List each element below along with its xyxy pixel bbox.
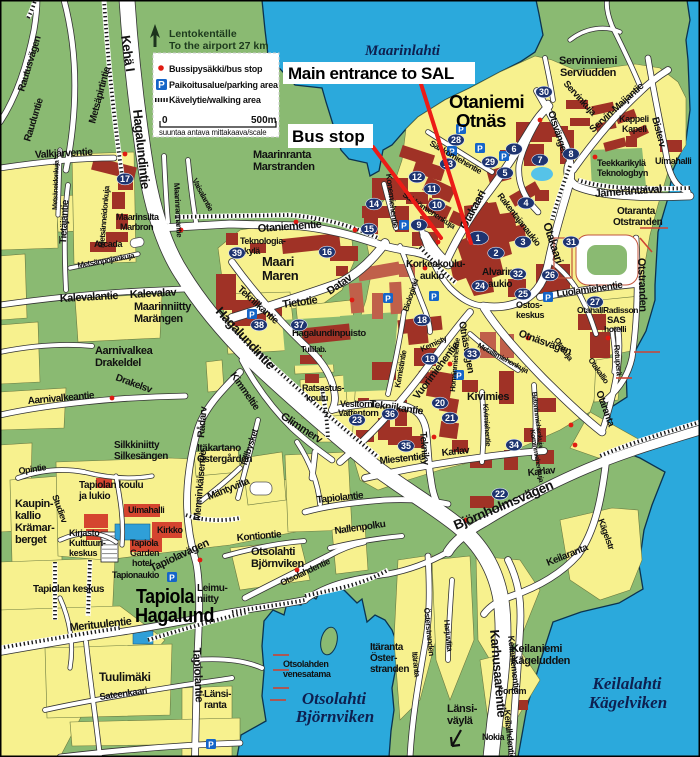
svg-text:500m: 500m xyxy=(251,115,277,126)
svg-text:Keilalahti: Keilalahti xyxy=(592,674,662,693)
svg-text:Ostos-: Ostos- xyxy=(516,300,543,310)
svg-text:28: 28 xyxy=(451,135,461,145)
svg-text:P: P xyxy=(501,152,507,162)
svg-text:4: 4 xyxy=(523,198,528,208)
svg-text:29: 29 xyxy=(485,157,495,167)
svg-text:keskus: keskus xyxy=(516,310,545,320)
svg-text:36: 36 xyxy=(385,409,395,419)
svg-text:Kapell: Kapell xyxy=(622,124,647,134)
svg-text:Marängen: Marängen xyxy=(134,313,183,325)
svg-text:Leimu-: Leimu- xyxy=(197,583,227,594)
svg-text:3: 3 xyxy=(520,237,525,247)
svg-text:Teknologbyn: Teknologbyn xyxy=(597,168,648,178)
svg-text:kylä: kylä xyxy=(244,246,261,256)
svg-text:Otaranta: Otaranta xyxy=(617,206,656,217)
svg-text:5: 5 xyxy=(502,168,507,178)
svg-text:Uimahalli: Uimahalli xyxy=(655,156,691,166)
svg-text:30: 30 xyxy=(539,87,549,97)
svg-text:26: 26 xyxy=(545,270,555,280)
svg-text:20: 20 xyxy=(435,398,445,408)
svg-text:Kävelytie/walking area: Kävelytie/walking area xyxy=(169,95,262,105)
svg-text:Aarnivalkea: Aarnivalkea xyxy=(95,345,154,357)
svg-text:P: P xyxy=(249,310,255,320)
svg-text:väylä: väylä xyxy=(447,715,474,727)
svg-text:Teekkarikylä: Teekkarikylä xyxy=(597,158,647,168)
svg-text:keskus: keskus xyxy=(69,548,98,558)
svg-text:27: 27 xyxy=(590,297,600,307)
svg-text:Ratsastus-: Ratsastus- xyxy=(302,383,344,393)
svg-text:Öster-: Öster- xyxy=(370,651,397,664)
svg-text:21: 21 xyxy=(445,413,455,423)
svg-text:Kirjasto: Kirjasto xyxy=(69,528,100,538)
svg-text:Otsolahden: Otsolahden xyxy=(283,659,329,669)
svg-text:Tapiolan keskus: Tapiolan keskus xyxy=(33,584,105,595)
svg-text:19: 19 xyxy=(425,354,435,364)
svg-text:P: P xyxy=(477,144,483,154)
svg-text:hotelli: hotelli xyxy=(604,324,626,334)
svg-text:2: 2 xyxy=(493,248,498,258)
svg-text:Drakeldel: Drakeldel xyxy=(95,357,141,369)
svg-text:Serviudden: Serviudden xyxy=(560,67,617,79)
svg-text:P: P xyxy=(158,80,165,91)
svg-text:Länsi-: Länsi- xyxy=(204,689,231,700)
svg-text:berget: berget xyxy=(15,534,47,546)
svg-text:Björnviken: Björnviken xyxy=(251,558,305,570)
svg-text:kallio: kallio xyxy=(15,510,41,522)
svg-text:39: 39 xyxy=(232,248,242,258)
svg-text:Marbron: Marbron xyxy=(120,222,153,232)
svg-text:38: 38 xyxy=(254,320,264,330)
svg-text:8: 8 xyxy=(568,149,573,159)
svg-text:Korkeakoulu-: Korkeakoulu- xyxy=(406,259,465,270)
svg-text:Tapiolan koulu: Tapiolan koulu xyxy=(79,480,144,491)
svg-text:P: P xyxy=(385,294,391,304)
svg-text:Otstranden: Otstranden xyxy=(635,258,649,313)
svg-text:Otsolahti: Otsolahti xyxy=(251,546,295,558)
svg-text:14: 14 xyxy=(369,199,379,209)
svg-text:6: 6 xyxy=(511,144,516,154)
svg-text:P: P xyxy=(208,740,214,750)
svg-text:venesatama: venesatama xyxy=(283,669,332,679)
svg-text:Hagalund: Hagalund xyxy=(135,605,214,627)
svg-text:18: 18 xyxy=(417,315,427,325)
svg-text:Kulttuuri-: Kulttuuri- xyxy=(69,538,106,548)
svg-text:Teknologia-: Teknologia- xyxy=(240,236,286,246)
svg-text:Bus stop: Bus stop xyxy=(292,127,365,146)
svg-text:Krämar-: Krämar- xyxy=(15,522,55,534)
svg-text:Björnviken: Björnviken xyxy=(295,707,374,726)
svg-text:Itäranta: Itäranta xyxy=(370,642,404,653)
svg-text:Tietäjäntie: Tietäjäntie xyxy=(58,199,71,244)
svg-text:To the airport 27 km: To the airport 27 km xyxy=(169,40,269,52)
svg-text:niitty: niitty xyxy=(197,594,219,605)
svg-text:Silkkiniitty: Silkkiniitty xyxy=(114,440,160,451)
svg-text:35: 35 xyxy=(401,441,411,451)
svg-text:ja lukio: ja lukio xyxy=(78,491,111,502)
svg-text:Servinniemi: Servinniemi xyxy=(559,55,617,67)
svg-text:Otaniemi: Otaniemi xyxy=(449,91,524,112)
svg-text:Otstranden: Otstranden xyxy=(613,217,663,228)
svg-text:16: 16 xyxy=(322,247,332,257)
svg-text:ranta: ranta xyxy=(204,700,227,711)
svg-text:Nokia: Nokia xyxy=(482,732,506,742)
svg-text:aukio: aukio xyxy=(488,279,512,290)
svg-text:Silkesängen: Silkesängen xyxy=(114,451,168,462)
svg-text:34: 34 xyxy=(509,440,519,450)
svg-text:15: 15 xyxy=(364,224,374,234)
svg-text:Tuulimäki: Tuulimäki xyxy=(99,670,151,684)
svg-text:Kivimies: Kivimies xyxy=(467,391,509,403)
svg-text:11: 11 xyxy=(427,184,437,194)
svg-text:31: 31 xyxy=(566,237,576,247)
svg-text:1: 1 xyxy=(475,233,480,243)
svg-text:Tapiola: Tapiola xyxy=(130,538,159,548)
svg-text:suuntaa antava mittakaava/scal: suuntaa antava mittakaava/scale xyxy=(159,128,266,137)
svg-text:32: 32 xyxy=(513,269,523,279)
svg-text:Paikoitusalue/parking area: Paikoitusalue/parking area xyxy=(169,80,279,90)
svg-text:Lentokentälle: Lentokentälle xyxy=(169,28,237,40)
svg-text:Maari: Maari xyxy=(262,254,294,269)
svg-text:Kappeli: Kappeli xyxy=(619,114,649,124)
svg-text:17: 17 xyxy=(120,174,130,184)
svg-text:Länsi-: Länsi- xyxy=(447,703,478,715)
svg-text:33: 33 xyxy=(467,349,477,359)
svg-text:7: 7 xyxy=(537,155,542,165)
svg-text:Maarinniitty: Maarinniitty xyxy=(134,301,192,313)
svg-text:Kaupin-: Kaupin- xyxy=(15,498,54,510)
svg-text:koulu: koulu xyxy=(306,393,328,403)
svg-text:0: 0 xyxy=(162,115,168,126)
svg-text:P: P xyxy=(545,293,551,303)
svg-text:24: 24 xyxy=(475,281,485,291)
svg-text:9: 9 xyxy=(416,220,421,230)
svg-text:25: 25 xyxy=(518,289,528,299)
svg-text:P: P xyxy=(431,292,437,302)
svg-text:Tullilab.: Tullilab. xyxy=(301,345,326,354)
svg-text:Kägelviken: Kägelviken xyxy=(588,693,667,712)
svg-text:37: 37 xyxy=(294,320,304,330)
svg-text:Maarinsilta: Maarinsilta xyxy=(116,212,160,222)
svg-text:P: P xyxy=(401,221,407,231)
svg-text:Alvarin: Alvarin xyxy=(482,267,513,278)
svg-text:23: 23 xyxy=(352,415,362,425)
svg-text:10: 10 xyxy=(432,200,442,210)
svg-text:Otnäs: Otnäs xyxy=(456,110,506,131)
svg-text:Kalevalav: Kalevalav xyxy=(130,287,178,301)
svg-text:Otsolahti: Otsolahti xyxy=(302,689,367,708)
svg-text:Maren: Maren xyxy=(262,268,299,283)
svg-text:Main entrance to SAL: Main entrance to SAL xyxy=(288,64,454,83)
svg-text:Maarinranta: Maarinranta xyxy=(253,149,312,161)
svg-text:P: P xyxy=(169,573,175,583)
svg-text:Uimahalli: Uimahalli xyxy=(128,505,164,515)
svg-text:Kirkko: Kirkko xyxy=(157,525,184,535)
svg-text:22: 22 xyxy=(495,489,505,499)
svg-text:Bussipysäkki/bus stop: Bussipysäkki/bus stop xyxy=(169,64,263,74)
svg-text:Radisson: Radisson xyxy=(603,305,638,315)
svg-text:Maarinlahti: Maarinlahti xyxy=(364,43,441,59)
svg-text:stranden: stranden xyxy=(370,664,409,675)
svg-text:Garden: Garden xyxy=(130,548,159,558)
svg-text:aukio: aukio xyxy=(420,271,444,282)
svg-text:Marstranden: Marstranden xyxy=(253,161,315,173)
svg-text:12: 12 xyxy=(412,172,422,182)
